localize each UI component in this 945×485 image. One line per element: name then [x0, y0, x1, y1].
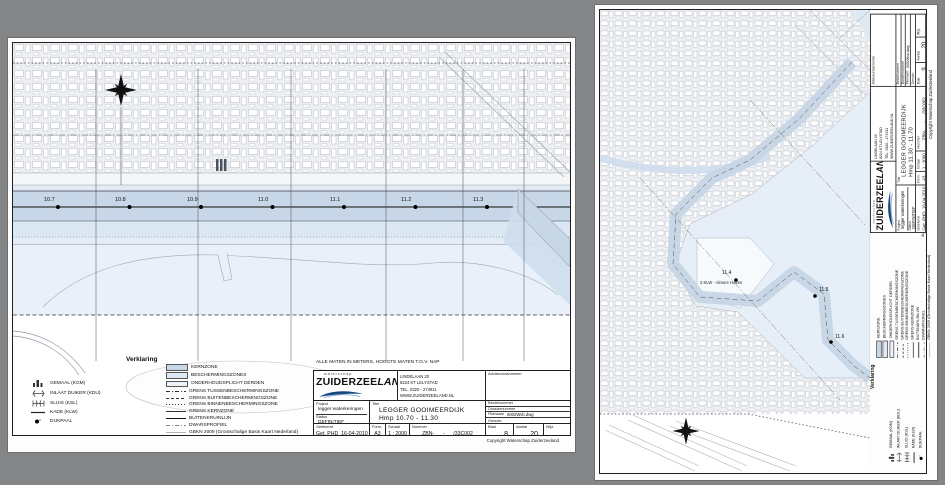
right-map-drawing: 2 KLW - Almere Haven 11.4 11.5 11.6 [600, 10, 870, 471]
address-line: WWW.ZUIDERZEELAND.NL [400, 393, 483, 399]
legend-zone-label: GRENS KERNZONE [912, 305, 916, 340]
grens-tussen-swatch [897, 342, 898, 358]
grens-buiten-swatch [903, 342, 904, 358]
legend-zone-label: GRENS BUITENBESCHERMINGSZONE [901, 271, 905, 340]
water-area [13, 245, 570, 315]
legend-zone-label: BUITENKRUINLIJN [917, 307, 921, 340]
legend-title: Verklaring [870, 364, 875, 389]
legend-symbol-label: GEMAAL (KGM) [50, 381, 85, 386]
company-address: LINDELAAN 20 8224 KT LELYSTAD TEL. 0320 … [871, 86, 897, 161]
gemaal-icon [30, 380, 46, 387]
legend-zone-label: BESCHERMINGSZONES [883, 295, 887, 338]
adviseur-cell: Adviseur/aannemer [871, 15, 897, 86]
svg-text:11.6: 11.6 [835, 334, 845, 340]
map-title-line: LEGGER GOOIMEERDIJK [379, 407, 483, 415]
legend-symbol-label: DIJKPAAL [919, 431, 923, 448]
legend-symbol-row: SLUIS (KSL) [30, 400, 100, 407]
legend-zone-label: KERNZONE [191, 365, 218, 370]
project-status-cell: Project legger waterkeringen Status DEFI… [314, 401, 370, 424]
legend-zone-row: GBKN 2009 (Grootschalige Basis Kaart Ned… [166, 430, 298, 435]
copyright-line: Copyright Waterschap Zuiderzeeland [487, 438, 559, 443]
sheet-right: 2 KLW - Almere Haven 11.4 11.5 11.6 Verk… [595, 5, 937, 480]
dwarsprofiel-swatch [166, 425, 186, 426]
svg-text:0.7: 0.7 [920, 455, 922, 457]
aantal-cell: Aantal20 [916, 37, 925, 63]
legend-zone-label: KERNZONE [877, 318, 881, 339]
rotated-margin-strip: Verklaring GEMAAL (KGM) INLAAT DUIKER (K… [869, 9, 927, 469]
legend-zone-label: DWARSPROFIEL [922, 310, 926, 340]
kade-line-icon [913, 451, 915, 463]
nummer-cell: NummerZBN- - /33C002 [916, 86, 925, 151]
logo-swoosh-icon [316, 389, 366, 399]
kernzone-swatch [876, 341, 881, 358]
buitenkruinlijn-swatch [918, 342, 919, 358]
legend-symbols: GEMAAL (KGM) INLAAT DUIKER (KDU) SLUIS (… [30, 380, 100, 424]
legend-zone-row: GBKN 2009 (Grootschalige Basis Kaart Ned… [927, 255, 931, 358]
map-title-line: Hmp 11.30 - 11.70 [908, 89, 915, 177]
legend-zone-row: GRENS KERNZONE [166, 409, 298, 414]
zuiderzeeland-logo: waterschap ZUIDERZEELAND [871, 161, 897, 232]
grens-kernzone-swatch [166, 411, 186, 412]
wijz-cell: Wijz. [916, 15, 925, 37]
logo-swoosh-icon [886, 188, 895, 230]
legend-zone-label: GRENS BINNENBESCHERMINGSZONE [189, 402, 278, 407]
inlaat-duiker-icon [897, 451, 902, 463]
legend-zone-label: GRENS TUSSENBESCHERMINGSZONE [896, 270, 900, 340]
legend-symbol-label: KADE (KLW) [50, 410, 78, 415]
legend-symbol-row: INLAAT DUIKER (KDU) [897, 409, 902, 464]
urban-area [13, 43, 570, 173]
svg-text:0.7: 0.7 [39, 418, 42, 422]
title-block-right: waterschap ZUIDERZEELAND LINDELAAN 20 82… [870, 14, 926, 233]
svg-text:11.3: 11.3 [473, 197, 483, 203]
grens-tussen-swatch [166, 391, 186, 392]
legend-zone-row: KERNZONE [876, 255, 881, 358]
legend-zone-row: BUITENKRUINLIJN [166, 416, 298, 421]
grens-binnen-swatch [908, 342, 909, 358]
legend-zone-label: GRENS BUITENBESCHERMINGSZONE [189, 396, 277, 401]
legend-zone-label: BESCHERMINGSZONES [191, 373, 246, 378]
legend-symbol-row: GEMAAL (KGM) [30, 380, 100, 387]
legend-zone-label: GBKN 2009 (Grootschalige Basis Kaart Ned… [189, 430, 298, 435]
legend-zone-label: ONDERHOUDSPLICHT DERDEN [890, 281, 894, 338]
svg-text:10.9: 10.9 [187, 197, 198, 203]
desktop-background: 10.7 10.8 10.9 11.0 11.1 11.2 11.3 Verkl… [0, 0, 945, 485]
onderhoudsplicht-swatch [889, 341, 894, 358]
legend-zone-label: GRENS TUSSENBESCHERMINGSZONE [189, 389, 279, 394]
logo-wordmark: ZUIDERZEELAND [316, 376, 395, 389]
legend-symbol-label: KADE (KLW) [912, 427, 916, 449]
schaal-cell: Schaal1 : 2000 [386, 424, 410, 435]
company-address: LINDELAAN 20 8224 KT LELYSTAD TEL. 0320 … [398, 371, 486, 401]
legend-zone-row: ONDERHOUDSPLICHT DERDEN [166, 381, 298, 388]
legend-zone-row: BESCHERMINGSZONES [883, 255, 888, 358]
legend-zone-label: DWARSPROFIEL [189, 423, 227, 428]
svg-text:11.4: 11.4 [722, 270, 732, 276]
copyright-line: Copyright Waterschap Zuiderzeeland [928, 70, 933, 139]
kernzone-swatch [166, 364, 188, 371]
legend-right: Verklaring GEMAAL (KGM) INLAAT DUIKER (K… [870, 256, 928, 467]
dijkpaal-dot-icon: 0.7 [30, 418, 46, 424]
legend-symbol-label: INLAAT DUIKER (KDU) [897, 409, 901, 448]
form-cell: Form.A3 [916, 171, 925, 185]
project-status-cell: Project legger waterkeringen Status DEFI… [896, 185, 916, 233]
title-cell: Titel LEGGER GOOIMEERDIJK Hmp 10.70 - 11… [370, 401, 486, 424]
units-note: ALLE MATEN IN METERS, HOOGTE MATEN T.O.V… [316, 360, 440, 365]
svg-text:11.0: 11.0 [258, 197, 268, 203]
wijz-cell: Wijz. [544, 424, 570, 435]
svg-text:11.1: 11.1 [330, 197, 340, 203]
legend-zone-row: BUITENKRUINLIJN [917, 255, 921, 358]
legend-zone-label: GBKN 2009 (Grootschalige Basis Kaart Ned… [927, 255, 931, 340]
legend-zone-row: GRENS BINNENBESCHERMINGSZONE [906, 255, 910, 358]
legend-zone-row: BESCHERMINGSZONES [166, 372, 298, 379]
buitenkruinlijn-swatch [166, 418, 186, 419]
legend-zone-label: BUITENKRUINLIJN [189, 416, 231, 421]
legend-symbol-row: SLUIS (KSL) [904, 409, 909, 464]
title-cell: Titel LEGGER GOOIMEERDIJK Hmp 11.30 - 11… [896, 86, 916, 185]
map-title-line: LEGGER GOOIMEERDIJK [901, 89, 908, 177]
blad-cell: Blad9 [916, 62, 925, 86]
svg-text:10.8: 10.8 [115, 197, 126, 203]
legend-symbol-label: SLUIS (KSL) [905, 427, 909, 448]
legend-zone-row: DWARSPROFIEL [166, 423, 298, 428]
legend-zone-row: ONDERHOUDSPLICHT DERDEN [889, 255, 894, 358]
legend-symbol-row: 0.7DIJKPAAL [30, 418, 100, 424]
legend-zone-row: KERNZONE [166, 364, 298, 371]
legend-zone-row: GRENS BINNENBESCHERMINGSZONE [166, 402, 298, 407]
blad-cell: Blad8 [486, 424, 514, 435]
legend-zone-label: ONDERHOUDSPLICHT DERDEN [191, 381, 264, 386]
legend-zone-row: DWARSPROFIEL [922, 255, 926, 358]
legend-zone-row: GRENS BUITENBESCHERMINGSZONE [901, 255, 905, 358]
legend-title: Verklaring [126, 356, 157, 363]
dijkpaal-dot-icon: 0.7 [918, 451, 923, 463]
address-line: WWW.ZUIDERZEELAND.NL [889, 89, 894, 160]
legend-symbol-label: INLAAT DUIKER (KDU) [50, 391, 100, 396]
gbkn-swatch [166, 432, 186, 433]
document-numbers-cell: Bestelnummer Dossiernummer Filenaam0002W… [486, 401, 570, 424]
legend-left: Verklaring GEMAAL (KGM) INLAAT DUIKER (K… [26, 356, 296, 430]
grens-buiten-swatch [166, 398, 186, 399]
svg-text:10.7: 10.7 [44, 197, 55, 203]
zuiderzeeland-logo: waterschap ZUIDERZEELAND [314, 371, 398, 401]
sluis-icon [904, 451, 909, 463]
title-block-left: waterschap ZUIDERZEELAND LINDELAAN 20 82… [313, 370, 571, 436]
beschermingszone-band [13, 221, 570, 237]
legend-zone-row: GRENS TUSSENBESCHERMINGSZONE [896, 255, 900, 358]
kade-line-icon [30, 411, 46, 414]
legend-symbol-label: SLUIS (KSL) [50, 401, 77, 406]
legend-symbols: GEMAAL (KGM) INLAAT DUIKER (KDU) SLUIS (… [889, 409, 923, 464]
aantal-cell: Aantal20 [514, 424, 544, 435]
dwarsprofiel-swatch [924, 342, 925, 358]
adviseur-cell: Adviseur/aannemer [486, 371, 570, 401]
logo-wordmark: ZUIDERZEELAND [875, 163, 886, 230]
sheet-left: 10.7 10.8 10.9 11.0 11.1 11.2 11.3 Verkl… [8, 38, 575, 452]
legend-symbol-row: INLAAT DUIKER (KDU) [30, 390, 100, 397]
legend-zone-label: GRENS KERNZONE [189, 409, 234, 414]
legend-zones: KERNZONE BESCHERMINGSZONES ONDERHOUDSPLI… [166, 364, 298, 435]
sluis-icon [30, 400, 46, 407]
nummer-cell: NummerZBN- - /33C002 [410, 424, 486, 435]
legend-symbol-row: 0.7DIJKPAAL [918, 409, 923, 464]
getekend-cell: GetekendGet. PHD 16-04-2010 [916, 185, 925, 233]
legend-zone-row: GRENS BUITENBESCHERMINGSZONE [166, 396, 298, 401]
legend-symbol-row: GEMAAL (KGM) [889, 409, 894, 464]
inlaat-duiker-icon [30, 390, 46, 397]
getekend-cell: GetekendGet. PHD 16-04-2010 [314, 424, 370, 435]
schaal-cell: Schaal1 : 2000 [916, 151, 925, 171]
beschermingszones-swatch [883, 341, 888, 358]
legend-symbol-label: DIJKPAAL [50, 419, 72, 424]
svg-text:11.2: 11.2 [401, 197, 411, 203]
gbkn-swatch [929, 342, 930, 358]
legend-zone-row: GRENS KERNZONE [912, 255, 916, 358]
svg-text:11.5: 11.5 [819, 287, 829, 293]
legend-symbol-row: KADE (KLW) [30, 410, 100, 415]
grens-kernzone-swatch [913, 342, 914, 358]
grens-binnen-swatch [166, 404, 186, 405]
legend-zone-row: GRENS TUSSENBESCHERMINGSZONE [166, 389, 298, 394]
onderhoudsplicht-swatch [166, 381, 188, 388]
legend-zones: KERNZONE BESCHERMINGSZONES ONDERHOUDSPLI… [876, 255, 931, 358]
gemaal-structures [216, 159, 227, 171]
map-title-line: Hmp 10.70 - 11.30 [379, 415, 483, 423]
legend-symbol-row: KADE (KLW) [912, 409, 916, 464]
form-cell: Form.A3 [370, 424, 386, 435]
gemaal-icon [889, 451, 894, 463]
legend-symbol-label: GEMAAL (KGM) [890, 421, 894, 449]
legend-zone-label: GRENS BINNENBESCHERMINGSZONE [906, 271, 910, 340]
document-numbers-cell: Bestelnummer Dossiernummer Filenaam0002W… [896, 15, 916, 86]
beschermingszones-swatch [166, 372, 188, 379]
